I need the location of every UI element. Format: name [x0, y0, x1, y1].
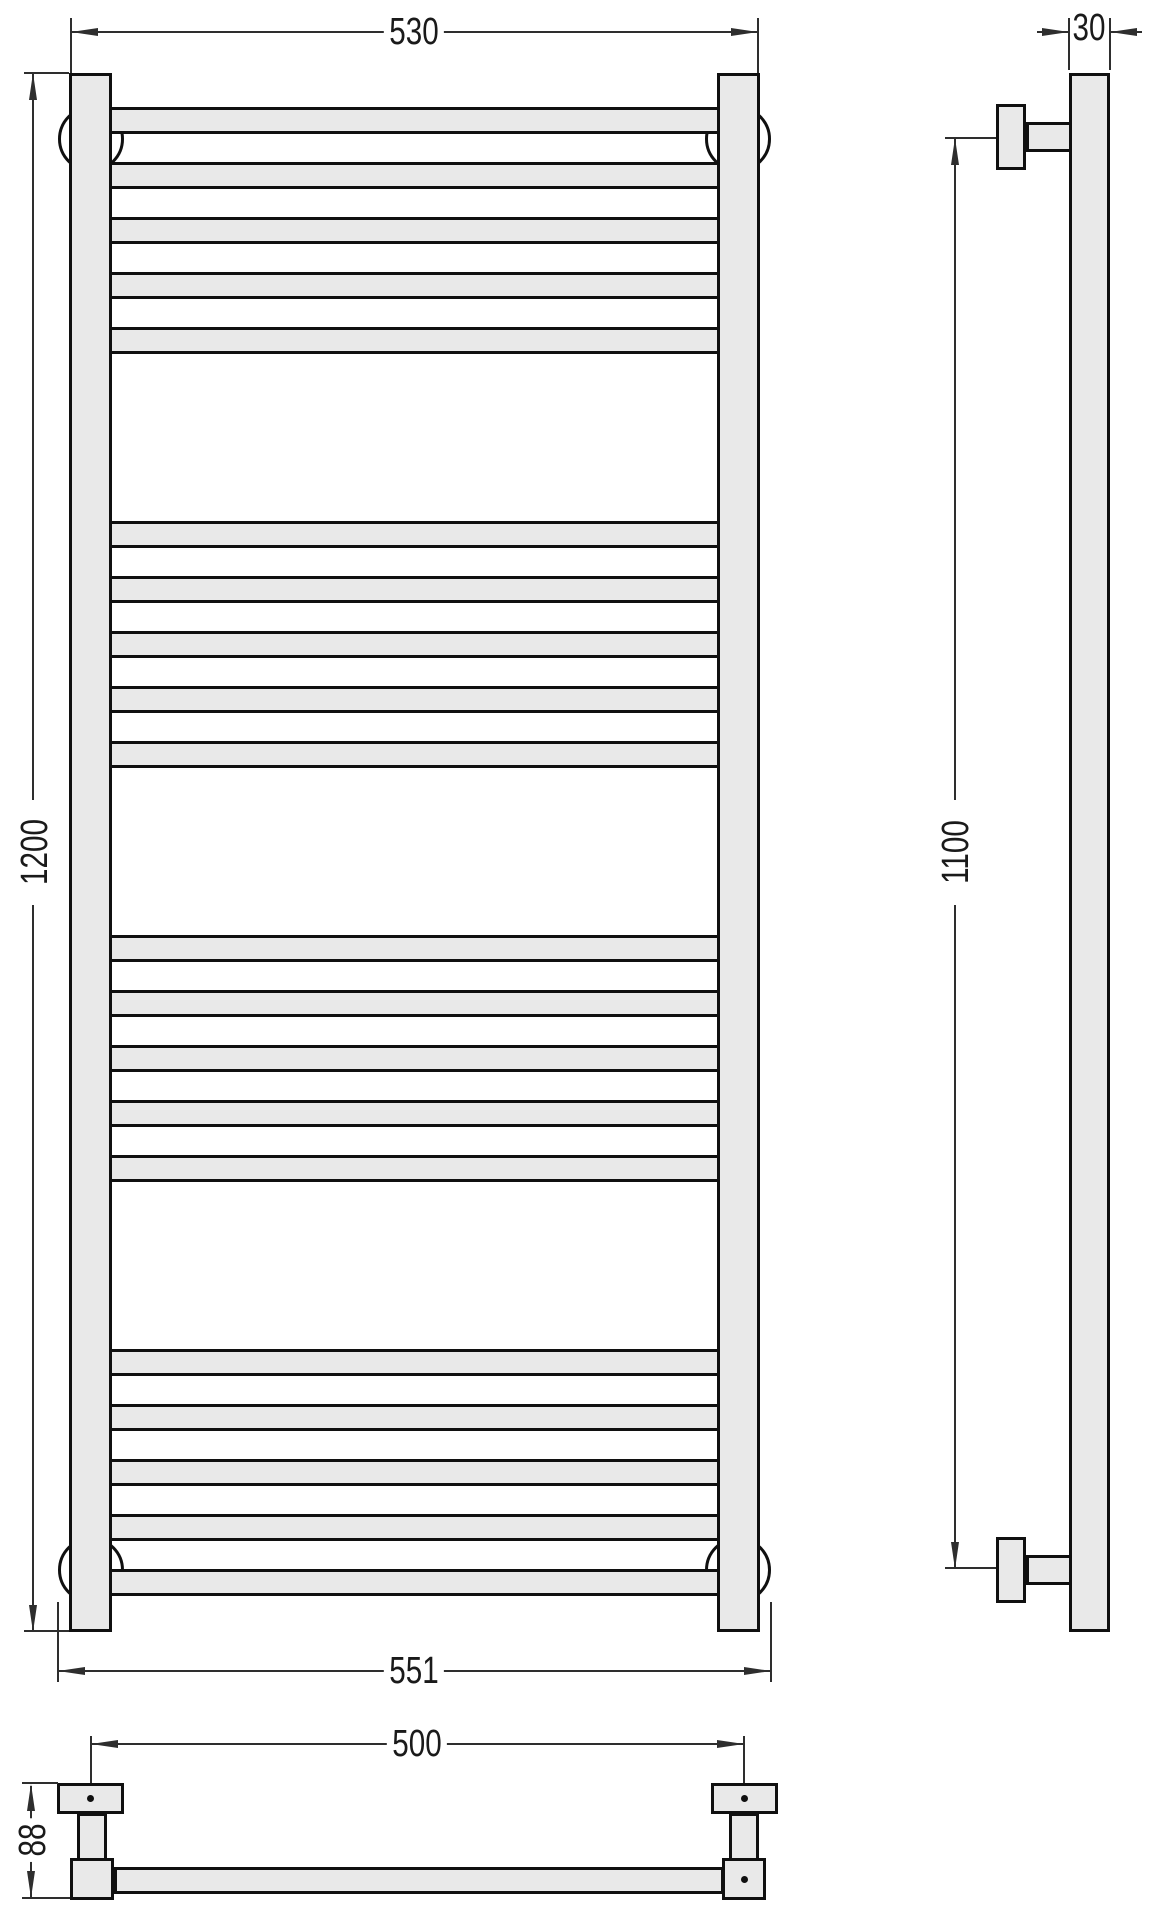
screw-dot-right-cap [741, 1876, 748, 1883]
rung [112, 521, 717, 548]
pipe-end-cap-left [70, 1858, 114, 1900]
dim-1100-tick-top [945, 137, 996, 139]
dim-88-arrow-down [27, 1871, 35, 1898]
dim-30-arrow-left [1042, 28, 1069, 36]
dim-30-label: 30 [1071, 8, 1107, 48]
dim-1100-arrow-up [951, 138, 959, 165]
rung [112, 1569, 717, 1596]
dim-88-arrow-up [27, 1784, 35, 1811]
dim-1200-arrow-down [29, 1605, 37, 1632]
bracket-plate-bottom [996, 1537, 1026, 1603]
dim-1200-line-lower [32, 905, 34, 1632]
rung [112, 741, 717, 768]
bracket-stem-right [729, 1813, 759, 1863]
dim-530-arrow-left [71, 28, 98, 36]
rail-right [717, 73, 760, 1632]
towel-rail-technical-drawing: 530 1200 551 30 [0, 0, 1163, 1920]
dim-1100-line-upper [954, 138, 956, 800]
bracket-arm-top [1026, 122, 1072, 152]
rung [112, 576, 717, 603]
dim-30-ext-right [1109, 18, 1111, 70]
rung [112, 1514, 717, 1541]
bottom-pipe [114, 1867, 724, 1894]
rung [112, 272, 717, 299]
rung [112, 631, 717, 658]
dim-88-label: 88 [12, 1818, 54, 1862]
rung [112, 217, 717, 244]
dim-1200-tick-bottom [24, 1630, 69, 1632]
rung [112, 1100, 717, 1127]
rung [112, 327, 717, 354]
rung [112, 107, 717, 134]
dim-88-tick-top [22, 1782, 58, 1784]
dim-1200-line-upper [32, 73, 34, 800]
dim-530-ext-right [757, 18, 759, 73]
side-pipe [1069, 73, 1110, 1632]
dim-500-arrow-right [717, 1740, 744, 1748]
bracket-stem-left [77, 1813, 107, 1863]
bracket-plate-top [996, 104, 1026, 170]
dim-88-tick-bottom [22, 1897, 70, 1899]
dim-530-label: 530 [384, 11, 444, 53]
rung [112, 1349, 717, 1376]
dim-500-arrow-left [91, 1740, 118, 1748]
bracket-arm-bottom [1026, 1555, 1072, 1585]
rung [112, 935, 717, 962]
rung [112, 686, 717, 713]
dim-1100-arrow-down [951, 1542, 959, 1569]
dim-551-arrow-left [58, 1667, 85, 1675]
rung [112, 1045, 717, 1072]
dim-530-arrow-right [731, 28, 758, 36]
dim-1200-label: 1200 [14, 814, 56, 891]
dim-1100-line-lower [954, 905, 956, 1569]
dim-530-ext-left [70, 18, 72, 73]
screw-dot-right-plate [741, 1795, 748, 1802]
dim-1200-arrow-up [29, 73, 37, 100]
rung [112, 162, 717, 189]
dim-551-label: 551 [384, 1650, 444, 1692]
rung [112, 1404, 717, 1431]
screw-dot-left-plate [87, 1795, 94, 1802]
dim-1200-tick-top [24, 72, 69, 74]
rung [112, 990, 717, 1017]
dim-500-label: 500 [387, 1723, 447, 1765]
dim-1100-label: 1100 [935, 815, 977, 890]
rail-left [69, 73, 112, 1632]
dim-551-arrow-right [744, 1667, 771, 1675]
rung [112, 1155, 717, 1182]
dim-30-ext-left [1068, 18, 1070, 70]
rung [112, 1459, 717, 1486]
dim-1100-tick-bottom [945, 1567, 996, 1569]
dim-30-arrow-right [1110, 28, 1137, 36]
